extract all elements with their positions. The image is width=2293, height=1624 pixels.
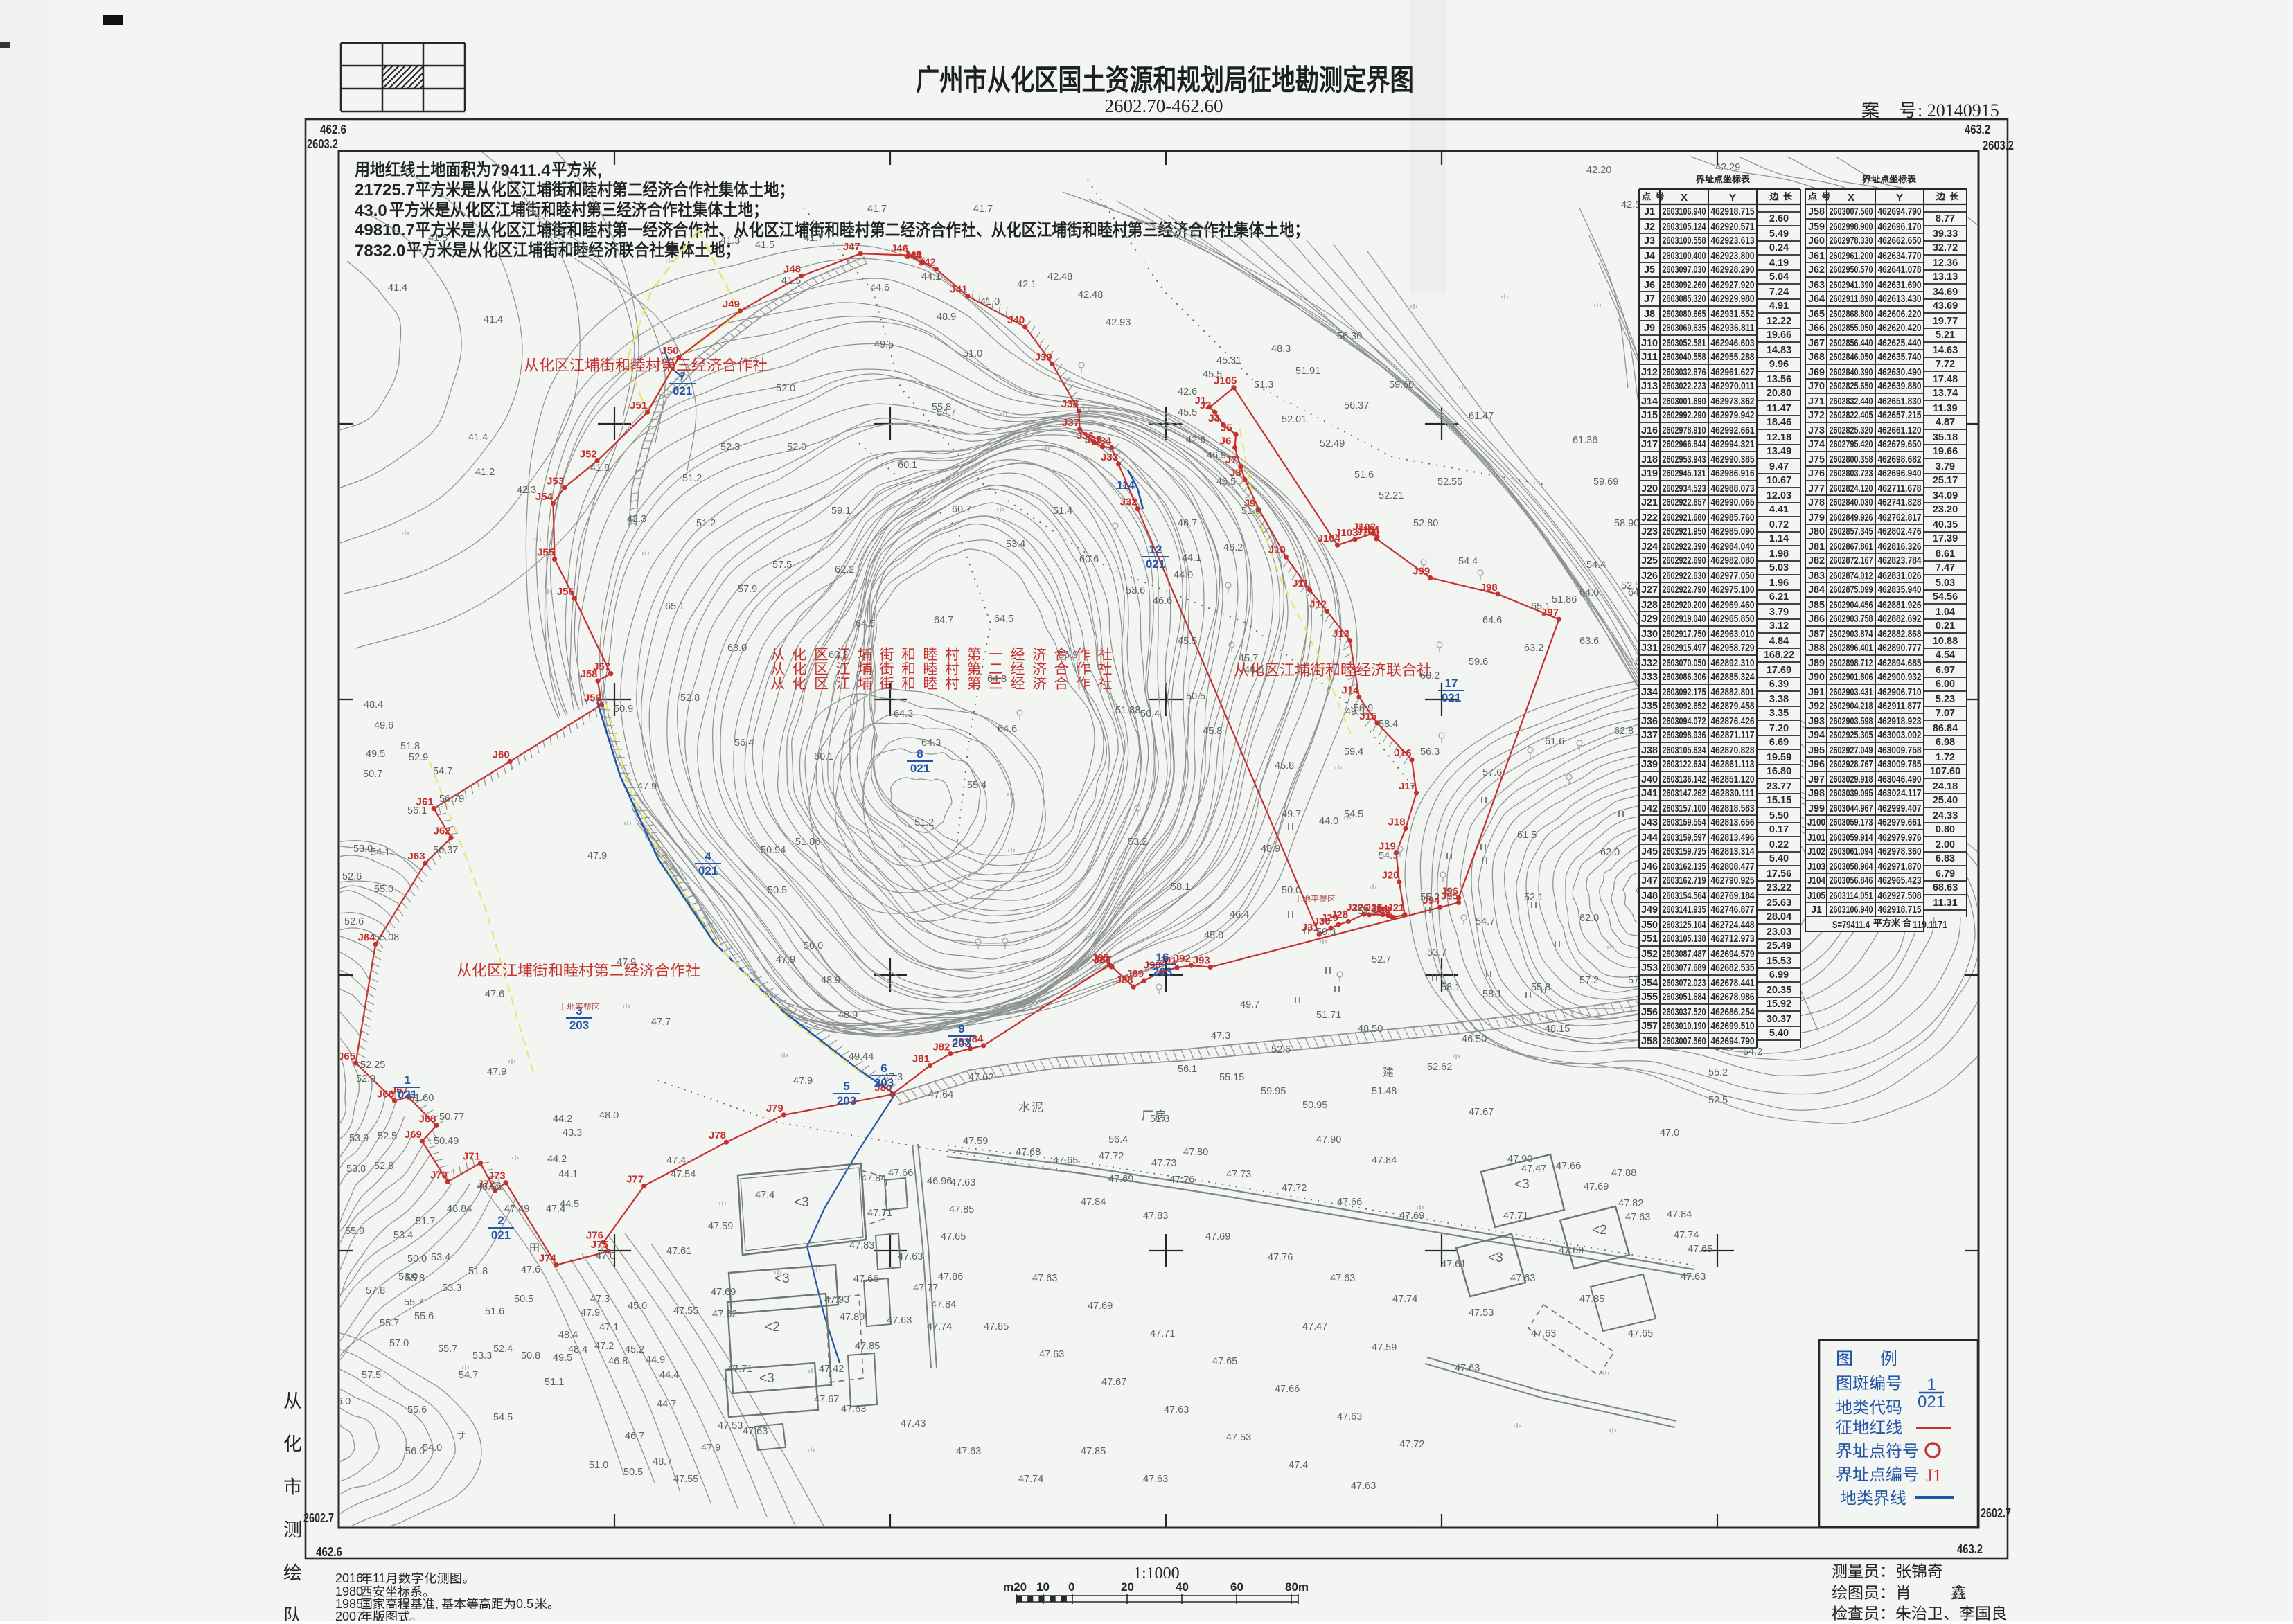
- svg-text:47.59: 47.59: [963, 1136, 988, 1147]
- svg-text:42.29: 42.29: [1715, 162, 1740, 173]
- svg-text:3.35: 3.35: [1769, 708, 1789, 719]
- svg-text:462892.310: 462892.310: [1711, 658, 1755, 669]
- svg-text:47.69: 47.69: [1108, 1174, 1133, 1185]
- svg-text:J51: J51: [630, 400, 647, 411]
- svg-text:19.77: 19.77: [1933, 316, 1958, 327]
- svg-text:462984.040: 462984.040: [1711, 542, 1755, 553]
- svg-text:2.60: 2.60: [1769, 213, 1789, 224]
- svg-text:462694.579: 462694.579: [1711, 949, 1755, 960]
- svg-text:3.79: 3.79: [1769, 607, 1789, 618]
- svg-text:32.72: 32.72: [1933, 242, 1958, 253]
- svg-text:J69: J69: [1808, 367, 1825, 378]
- svg-text:462969.460: 462969.460: [1711, 600, 1755, 611]
- svg-text:47.66: 47.66: [1337, 1197, 1362, 1208]
- svg-text:J98: J98: [1480, 582, 1498, 594]
- svg-text:2603092.652: 2603092.652: [1663, 701, 1706, 712]
- svg-text:,: ,: [435, 1597, 439, 1611]
- svg-text:9.47: 9.47: [1769, 461, 1789, 472]
- svg-text:J10: J10: [1268, 544, 1286, 556]
- svg-text:1: 1: [404, 1073, 410, 1087]
- svg-text:2602896.401: 2602896.401: [1830, 643, 1873, 654]
- svg-text:2603052.581: 2603052.581: [1663, 338, 1706, 349]
- svg-text:47.90: 47.90: [1316, 1134, 1341, 1145]
- svg-text:J55: J55: [537, 547, 554, 559]
- svg-text:2603.2: 2603.2: [307, 137, 338, 151]
- svg-text:53.6: 53.6: [1126, 585, 1145, 596]
- svg-text:2603159.725: 2603159.725: [1663, 846, 1706, 857]
- svg-text:462711.678: 462711.678: [1878, 483, 1922, 494]
- svg-text:13.56: 13.56: [1767, 374, 1791, 385]
- svg-text:58.90: 58.90: [1614, 518, 1639, 529]
- svg-text:11: 11: [373, 1571, 386, 1585]
- svg-text:13.74: 13.74: [1933, 388, 1958, 399]
- svg-text:55.6: 55.6: [407, 1404, 427, 1416]
- svg-text:47.67: 47.67: [814, 1394, 839, 1405]
- svg-text:59.69: 59.69: [1593, 476, 1618, 488]
- svg-text:462808.477: 462808.477: [1711, 862, 1755, 873]
- svg-text:107.60: 107.60: [1930, 766, 1960, 777]
- svg-text:J70: J70: [430, 1169, 448, 1181]
- svg-text:47.84: 47.84: [1667, 1209, 1692, 1220]
- svg-text:J36: J36: [1641, 716, 1658, 727]
- svg-text:54.5: 54.5: [493, 1412, 513, 1423]
- svg-text:203: 203: [837, 1094, 856, 1107]
- svg-text:J1: J1: [1926, 1465, 1942, 1485]
- svg-text:462920.571: 462920.571: [1711, 222, 1755, 233]
- svg-text:48.96: 48.96: [477, 1181, 502, 1193]
- svg-text:12.22: 12.22: [1767, 316, 1791, 327]
- svg-text:462992.661: 462992.661: [1711, 425, 1755, 436]
- svg-text:J13: J13: [1641, 381, 1658, 392]
- svg-text:47.9: 47.9: [701, 1443, 720, 1454]
- svg-text:52.6: 52.6: [342, 871, 362, 882]
- svg-text:<2: <2: [1592, 1223, 1607, 1238]
- svg-text:J53: J53: [1641, 963, 1658, 974]
- svg-text:47.67: 47.67: [1101, 1377, 1126, 1388]
- svg-text:462635.740: 462635.740: [1878, 352, 1922, 363]
- svg-text:462923.613: 462923.613: [1711, 235, 1755, 247]
- svg-text:J60: J60: [493, 749, 510, 760]
- svg-text:J12: J12: [1309, 598, 1327, 610]
- svg-text:48.15: 48.15: [1545, 1024, 1570, 1035]
- svg-text:25.40: 25.40: [1933, 795, 1958, 806]
- svg-text:55.9: 55.9: [345, 1226, 364, 1237]
- svg-text:2603051.684: 2603051.684: [1663, 992, 1706, 1003]
- svg-text:462613.430: 462613.430: [1878, 294, 1922, 305]
- svg-text:47.84: 47.84: [1372, 1155, 1397, 1166]
- svg-text:462918.715: 462918.715: [1878, 904, 1922, 916]
- svg-text:J42: J42: [1641, 803, 1658, 814]
- svg-text:2602825.320: 2602825.320: [1830, 425, 1873, 436]
- svg-text:53.4: 53.4: [393, 1230, 413, 1241]
- svg-text:<3: <3: [774, 1271, 790, 1286]
- svg-text:J16: J16: [1395, 747, 1412, 759]
- svg-text:52.62: 52.62: [1427, 1062, 1452, 1073]
- svg-text:J19: J19: [1641, 468, 1658, 479]
- svg-text:J17: J17: [1399, 780, 1416, 792]
- svg-text:203: 203: [569, 1019, 589, 1032]
- svg-text:J83: J83: [1808, 571, 1825, 582]
- svg-text:47.63: 47.63: [1032, 1273, 1057, 1284]
- svg-text:J76: J76: [1808, 468, 1825, 479]
- svg-text:47.61: 47.61: [1441, 1259, 1466, 1270]
- svg-text:2602903.431: 2602903.431: [1830, 687, 1873, 698]
- svg-text:,: ,: [597, 161, 602, 180]
- svg-text:J29: J29: [1641, 614, 1658, 625]
- svg-text:2602925.305: 2602925.305: [1830, 730, 1873, 741]
- svg-text:9.96: 9.96: [1769, 359, 1789, 370]
- svg-text:J26: J26: [1641, 571, 1658, 582]
- svg-text:2602915.497: 2602915.497: [1663, 643, 1706, 654]
- svg-text:55.08: 55.08: [374, 932, 399, 943]
- svg-text:79411.4: 79411.4: [491, 161, 551, 180]
- svg-text:J39: J39: [1035, 352, 1052, 364]
- svg-text:J92: J92: [1808, 701, 1825, 712]
- svg-text:47.9: 47.9: [637, 781, 657, 792]
- svg-text:J63: J63: [408, 850, 425, 862]
- svg-text:462894.685: 462894.685: [1878, 658, 1922, 669]
- svg-text:462885.324: 462885.324: [1711, 672, 1755, 683]
- svg-text:462928.290: 462928.290: [1711, 265, 1755, 276]
- svg-text:17.39: 17.39: [1933, 533, 1958, 544]
- svg-text:462985.760: 462985.760: [1711, 512, 1755, 524]
- svg-text:J72: J72: [1808, 410, 1825, 421]
- svg-text:2603122.634: 2603122.634: [1663, 759, 1706, 770]
- svg-text:J16: J16: [1641, 425, 1658, 436]
- svg-text:J8: J8: [1644, 309, 1655, 320]
- svg-text:52.1: 52.1: [1524, 892, 1543, 903]
- svg-text:52.55: 52.55: [1437, 476, 1462, 488]
- svg-text:J55: J55: [1641, 992, 1658, 1003]
- svg-text:2602903.874: 2602903.874: [1830, 629, 1873, 640]
- svg-text:48.50: 48.50: [1358, 1024, 1383, 1035]
- svg-text:47.55: 47.55: [673, 1474, 698, 1485]
- svg-text:4.87: 4.87: [1936, 417, 1955, 428]
- svg-text:48.9: 48.9: [821, 975, 840, 986]
- svg-text:6.39: 6.39: [1769, 679, 1789, 690]
- svg-text:50.5: 50.5: [1186, 691, 1205, 702]
- svg-text:2603087.487: 2603087.487: [1663, 949, 1706, 960]
- svg-text:47.9: 47.9: [581, 1308, 600, 1319]
- svg-text:44.1: 44.1: [1182, 553, 1201, 564]
- svg-text:47.71: 47.71: [1150, 1328, 1175, 1339]
- svg-text:1:1000: 1:1000: [1133, 1564, 1180, 1582]
- svg-text:53.7: 53.7: [1427, 947, 1446, 958]
- svg-text:59.1: 59.1: [831, 506, 851, 517]
- svg-text:2602978.910: 2602978.910: [1663, 425, 1706, 436]
- svg-text:2603040.558: 2603040.558: [1663, 352, 1706, 363]
- svg-text:462906.710: 462906.710: [1878, 687, 1922, 698]
- svg-text:J61: J61: [1808, 251, 1825, 262]
- svg-text:J67: J67: [1808, 338, 1825, 349]
- svg-text:19.59: 19.59: [1767, 752, 1791, 763]
- svg-text:30.37: 30.37: [1767, 1014, 1791, 1025]
- svg-text:14.63: 14.63: [1933, 345, 1958, 356]
- svg-text:52.5: 52.5: [1708, 1095, 1728, 1106]
- svg-text:2603094.072: 2603094.072: [1663, 716, 1706, 727]
- svg-text:J47: J47: [843, 241, 860, 253]
- svg-text:021: 021: [491, 1229, 511, 1242]
- svg-text:J90: J90: [1808, 672, 1825, 683]
- svg-text:J56: J56: [557, 586, 574, 598]
- svg-text:J51: J51: [1641, 934, 1658, 945]
- svg-text:462813.496: 462813.496: [1711, 832, 1755, 844]
- svg-text:462911.877: 462911.877: [1878, 701, 1922, 712]
- svg-text:41.5: 41.5: [755, 240, 774, 251]
- svg-text:51.3: 51.3: [1254, 380, 1273, 391]
- svg-text:462606.220: 462606.220: [1878, 309, 1922, 320]
- svg-text:6.98: 6.98: [1936, 737, 1955, 748]
- svg-text:6.21: 6.21: [1769, 591, 1789, 603]
- svg-text:51.91: 51.91: [1295, 366, 1320, 377]
- svg-text:55.4: 55.4: [967, 780, 986, 791]
- svg-text:462.6: 462.6: [320, 123, 346, 136]
- svg-text:2602921.680: 2602921.680: [1663, 512, 1706, 524]
- svg-text:47.74: 47.74: [1018, 1474, 1043, 1485]
- svg-text:42.20: 42.20: [1586, 165, 1611, 176]
- svg-text:2602904.456: 2602904.456: [1830, 600, 1873, 611]
- svg-text:J97: J97: [1808, 774, 1825, 785]
- svg-text:25.17: 25.17: [1933, 475, 1958, 486]
- svg-text:47.76: 47.76: [1169, 1175, 1194, 1186]
- svg-text:462679.650: 462679.650: [1878, 439, 1922, 450]
- svg-text:2602822.405: 2602822.405: [1830, 410, 1873, 421]
- svg-text:6.69: 6.69: [1769, 737, 1789, 748]
- svg-text:2603098.936: 2603098.936: [1663, 730, 1706, 741]
- svg-text:2602919.040: 2602919.040: [1663, 614, 1706, 625]
- svg-text:462790.925: 462790.925: [1711, 875, 1755, 886]
- svg-text:462741.828: 462741.828: [1878, 497, 1922, 508]
- svg-text:J36: J36: [1077, 430, 1094, 442]
- svg-text:47.3: 47.3: [1211, 1030, 1230, 1042]
- svg-text:J24: J24: [1641, 542, 1658, 553]
- svg-text:2602922.690: 2602922.690: [1663, 555, 1706, 566]
- svg-text:47.73: 47.73: [1226, 1169, 1251, 1180]
- svg-text:2603162.719: 2603162.719: [1663, 875, 1706, 886]
- svg-text:J85: J85: [1808, 600, 1825, 611]
- svg-text:47.63: 47.63: [956, 1446, 981, 1457]
- svg-text:2602934.523: 2602934.523: [1663, 483, 1706, 494]
- svg-text:51.3: 51.3: [1150, 1114, 1169, 1125]
- svg-text:J104: J104: [1807, 875, 1825, 886]
- svg-text:J3: J3: [1644, 235, 1655, 247]
- svg-text:J76: J76: [586, 1230, 603, 1242]
- svg-text:49.6: 49.6: [374, 720, 393, 731]
- svg-text:J46: J46: [891, 243, 908, 255]
- svg-text:J21: J21: [1641, 497, 1658, 508]
- svg-text:51.86: 51.86: [1552, 594, 1577, 605]
- svg-text:J6: J6: [1644, 280, 1655, 291]
- svg-text:1985: 1985: [335, 1597, 363, 1611]
- svg-text:462879.458: 462879.458: [1711, 701, 1755, 712]
- svg-text:47.63: 47.63: [1039, 1349, 1064, 1360]
- svg-text:2603056.846: 2603056.846: [1830, 875, 1873, 886]
- svg-text:J25: J25: [1641, 555, 1658, 566]
- svg-text:54.7: 54.7: [433, 766, 452, 777]
- svg-text:J50: J50: [1641, 920, 1658, 931]
- svg-text:47.9: 47.9: [487, 1067, 506, 1078]
- svg-text:J69: J69: [405, 1129, 422, 1141]
- svg-text:021: 021: [1442, 691, 1461, 704]
- svg-text:J37: J37: [1062, 417, 1079, 429]
- svg-text:5.40: 5.40: [1769, 853, 1789, 864]
- svg-text:20: 20: [1121, 1580, 1134, 1594]
- svg-text:51.8: 51.8: [400, 741, 420, 752]
- svg-text:46.96: 46.96: [927, 1176, 952, 1187]
- svg-text:114: 114: [1117, 480, 1135, 492]
- svg-text:2603039.095: 2603039.095: [1830, 788, 1873, 799]
- svg-text:42.6: 42.6: [1178, 386, 1197, 398]
- svg-text:<3: <3: [794, 1195, 809, 1210]
- svg-text:<3: <3: [1488, 1251, 1503, 1265]
- svg-text:4: 4: [705, 850, 711, 863]
- svg-text:J71: J71: [1808, 396, 1825, 407]
- svg-text:463.2: 463.2: [1957, 1542, 1983, 1556]
- svg-text:J99: J99: [1808, 803, 1825, 814]
- svg-text:J47: J47: [1641, 875, 1658, 886]
- svg-text:46.9: 46.9: [1207, 450, 1226, 461]
- svg-text:58.1: 58.1: [1441, 982, 1460, 993]
- svg-text:23.77: 23.77: [1767, 781, 1791, 792]
- svg-text:462929.980: 462929.980: [1711, 294, 1755, 305]
- svg-text:462830.111: 462830.111: [1711, 788, 1755, 799]
- svg-text:2602978.330: 2602978.330: [1830, 235, 1873, 247]
- svg-text:11.39: 11.39: [1933, 403, 1958, 414]
- svg-text:10.67: 10.67: [1767, 475, 1791, 486]
- svg-text:40: 40: [1176, 1580, 1189, 1594]
- svg-text:52.25: 52.25: [360, 1060, 385, 1071]
- svg-text:2602846.050: 2602846.050: [1830, 352, 1873, 363]
- svg-text:462694.790: 462694.790: [1711, 1036, 1755, 1047]
- svg-text:49.5: 49.5: [874, 339, 894, 350]
- svg-text:2603105.138: 2603105.138: [1663, 934, 1706, 945]
- svg-text:1.04: 1.04: [1936, 607, 1955, 618]
- svg-text:47.83: 47.83: [1143, 1211, 1168, 1222]
- svg-text:47.65: 47.65: [1628, 1328, 1653, 1339]
- svg-text:48.4: 48.4: [364, 699, 383, 711]
- svg-text:8.61: 8.61: [1936, 548, 1955, 560]
- svg-text:2603085.320: 2603085.320: [1663, 294, 1706, 305]
- svg-text:6.00: 6.00: [1936, 679, 1955, 690]
- svg-text:5.21: 5.21: [1936, 330, 1955, 341]
- svg-text:55.6: 55.6: [414, 1311, 434, 1322]
- svg-text:47.80: 47.80: [1183, 1147, 1208, 1158]
- svg-text:51.88: 51.88: [1115, 705, 1140, 716]
- svg-text:47.76: 47.76: [1268, 1252, 1293, 1263]
- svg-text:462698.682: 462698.682: [1878, 454, 1922, 465]
- svg-text:J41: J41: [950, 284, 967, 296]
- svg-text:J98: J98: [1808, 788, 1825, 799]
- svg-text:64.6: 64.6: [998, 724, 1017, 735]
- svg-text:47.0: 47.0: [1660, 1127, 1679, 1139]
- svg-text:15.53: 15.53: [1767, 956, 1791, 967]
- svg-text:52.4: 52.4: [493, 1344, 513, 1355]
- svg-text:55.7: 55.7: [438, 1344, 457, 1355]
- svg-text:J2: J2: [1200, 400, 1212, 411]
- svg-text:64.8: 64.8: [987, 674, 1007, 685]
- svg-text:63.0: 63.0: [727, 643, 747, 654]
- svg-text:462631.690: 462631.690: [1878, 280, 1922, 291]
- svg-text:J74: J74: [539, 1253, 557, 1265]
- svg-text:48.0: 48.0: [599, 1110, 619, 1121]
- svg-text:35.18: 35.18: [1933, 432, 1958, 443]
- svg-text:462625.440: 462625.440: [1878, 338, 1922, 349]
- svg-text:41.4: 41.4: [484, 314, 503, 325]
- svg-text:J100: J100: [1807, 817, 1825, 828]
- svg-text:J13: J13: [1332, 628, 1349, 640]
- svg-text:49.3: 49.3: [1345, 706, 1365, 717]
- svg-text:47.74: 47.74: [1674, 1230, 1699, 1241]
- svg-text:462818.583: 462818.583: [1711, 803, 1755, 814]
- svg-text:021: 021: [910, 762, 930, 775]
- svg-text:48.84: 48.84: [447, 1204, 472, 1215]
- svg-text:J70: J70: [1808, 381, 1825, 392]
- svg-text:462979.661: 462979.661: [1878, 817, 1922, 828]
- svg-text:52.0: 52.0: [776, 383, 795, 394]
- svg-text:47.66: 47.66: [1275, 1384, 1300, 1395]
- svg-text:25.63: 25.63: [1767, 898, 1791, 909]
- svg-text:J15: J15: [1641, 410, 1658, 421]
- svg-text:51.6: 51.6: [1354, 470, 1374, 481]
- svg-text:52.80: 52.80: [1413, 518, 1438, 529]
- svg-text:3.38: 3.38: [1769, 694, 1789, 705]
- svg-text:1.72: 1.72: [1936, 752, 1955, 763]
- svg-text:2602961.200: 2602961.200: [1830, 251, 1873, 262]
- svg-text:15.92: 15.92: [1767, 999, 1791, 1010]
- svg-text:J31: J31: [1641, 643, 1658, 654]
- svg-text:J9: J9: [1644, 323, 1655, 334]
- svg-text:2602872.167: 2602872.167: [1830, 555, 1873, 566]
- svg-text:47.63: 47.63: [1164, 1404, 1189, 1416]
- svg-text:17.56: 17.56: [1767, 868, 1791, 880]
- svg-text:46.7: 46.7: [625, 1431, 644, 1442]
- svg-text:J44: J44: [1641, 832, 1658, 844]
- svg-text:60.1: 60.1: [814, 751, 833, 762]
- svg-text:<3: <3: [759, 1371, 774, 1386]
- svg-text:47.1: 47.1: [599, 1322, 619, 1333]
- svg-text:60.7: 60.7: [952, 504, 971, 515]
- svg-text:51.0: 51.0: [589, 1460, 608, 1471]
- svg-text:5.40: 5.40: [1769, 1028, 1789, 1039]
- svg-text:51.3: 51.3: [1358, 906, 1377, 917]
- svg-text:45.5: 45.5: [1203, 369, 1222, 380]
- svg-text:54.4: 54.4: [1586, 560, 1606, 571]
- svg-text:J32: J32: [1641, 658, 1658, 669]
- svg-text:J62: J62: [434, 826, 451, 837]
- svg-text:42.3: 42.3: [627, 514, 646, 525]
- svg-text:462936.811: 462936.811: [1711, 323, 1755, 334]
- svg-text:J57: J57: [1641, 1021, 1658, 1032]
- svg-text:64.7: 64.7: [934, 615, 953, 626]
- svg-text:J50: J50: [661, 345, 678, 357]
- svg-text:203: 203: [952, 1037, 971, 1050]
- svg-text:47.4: 47.4: [666, 1155, 686, 1166]
- svg-text:2602950.570: 2602950.570: [1830, 265, 1873, 276]
- svg-text:51.2: 51.2: [682, 473, 702, 484]
- svg-text:63.6: 63.6: [1579, 636, 1599, 647]
- svg-text:57.0: 57.0: [389, 1338, 409, 1349]
- svg-text:J87: J87: [1094, 954, 1111, 965]
- svg-text:462881.926: 462881.926: [1878, 600, 1922, 611]
- svg-text:2602998.900: 2602998.900: [1830, 222, 1873, 233]
- svg-text:2602922.657: 2602922.657: [1663, 497, 1706, 508]
- svg-text:48.4: 48.4: [558, 1330, 578, 1341]
- svg-text:8.77: 8.77: [1936, 213, 1955, 224]
- svg-text:52.7: 52.7: [1372, 954, 1391, 965]
- svg-text:2603059.914: 2603059.914: [1830, 832, 1873, 844]
- svg-text:45.5: 45.5: [1178, 407, 1197, 418]
- svg-text:0: 0: [1068, 1580, 1074, 1594]
